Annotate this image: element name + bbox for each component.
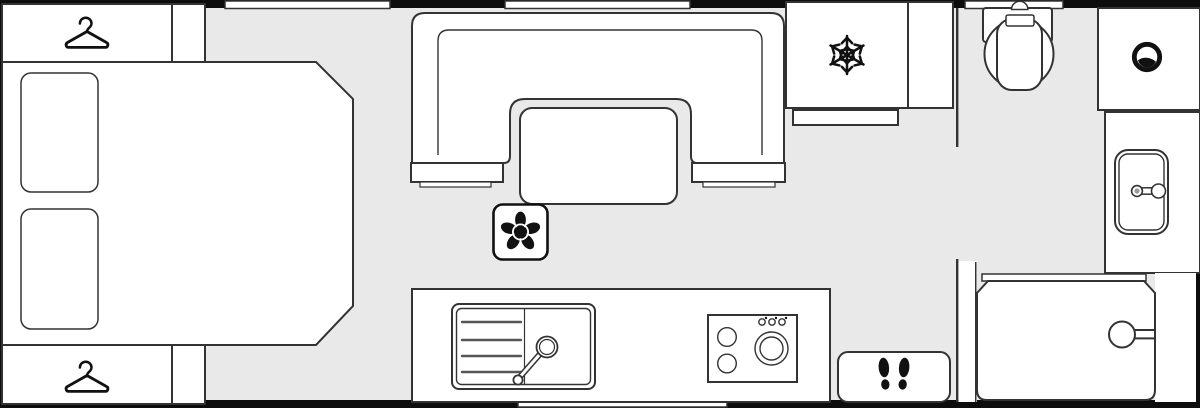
- table: [520, 108, 677, 204]
- bench-step-left: [420, 182, 491, 187]
- bench-step-right: [703, 182, 775, 187]
- shower-head-arm: [1134, 330, 1155, 338]
- window-bedroom: [225, 1, 390, 9]
- shower-wall-cavity: [959, 261, 978, 402]
- fridge-drawer: [793, 110, 898, 125]
- entrance-step: [838, 352, 950, 402]
- floorplan-canvas: [0, 0, 1200, 408]
- shower-screen: [982, 274, 1146, 281]
- extractor-fan: [494, 205, 548, 260]
- pillow-left: [21, 73, 98, 192]
- bench-plinth-left: [411, 163, 503, 182]
- front-cupboard: [172, 4, 205, 62]
- round-basin-icon: [1134, 44, 1159, 69]
- shower: [977, 274, 1155, 400]
- shower-head: [1109, 322, 1135, 348]
- kitchen-sink: [452, 304, 595, 389]
- kitchen: [412, 289, 830, 402]
- toilet-seat: [997, 19, 1042, 90]
- pillow-right: [21, 209, 98, 329]
- entrance: [838, 352, 950, 402]
- bench-plinth-right: [692, 163, 785, 182]
- toilet: [983, 1, 1054, 90]
- toilet-lid-hinge: [1006, 15, 1034, 26]
- washbasin: [1115, 150, 1168, 234]
- hob: [708, 315, 797, 382]
- tall-cupboard: [908, 2, 953, 108]
- shower-surround: [1155, 273, 1196, 402]
- fridge-unit: [786, 2, 953, 125]
- rear-cupboard: [172, 345, 205, 404]
- partition-upper: [956, 8, 958, 147]
- partition-lower: [956, 259, 958, 402]
- floorplan-page: [0, 0, 1200, 408]
- bedroom: [2, 4, 353, 404]
- window-dinette: [505, 1, 690, 9]
- lounge-dinette: [411, 13, 785, 204]
